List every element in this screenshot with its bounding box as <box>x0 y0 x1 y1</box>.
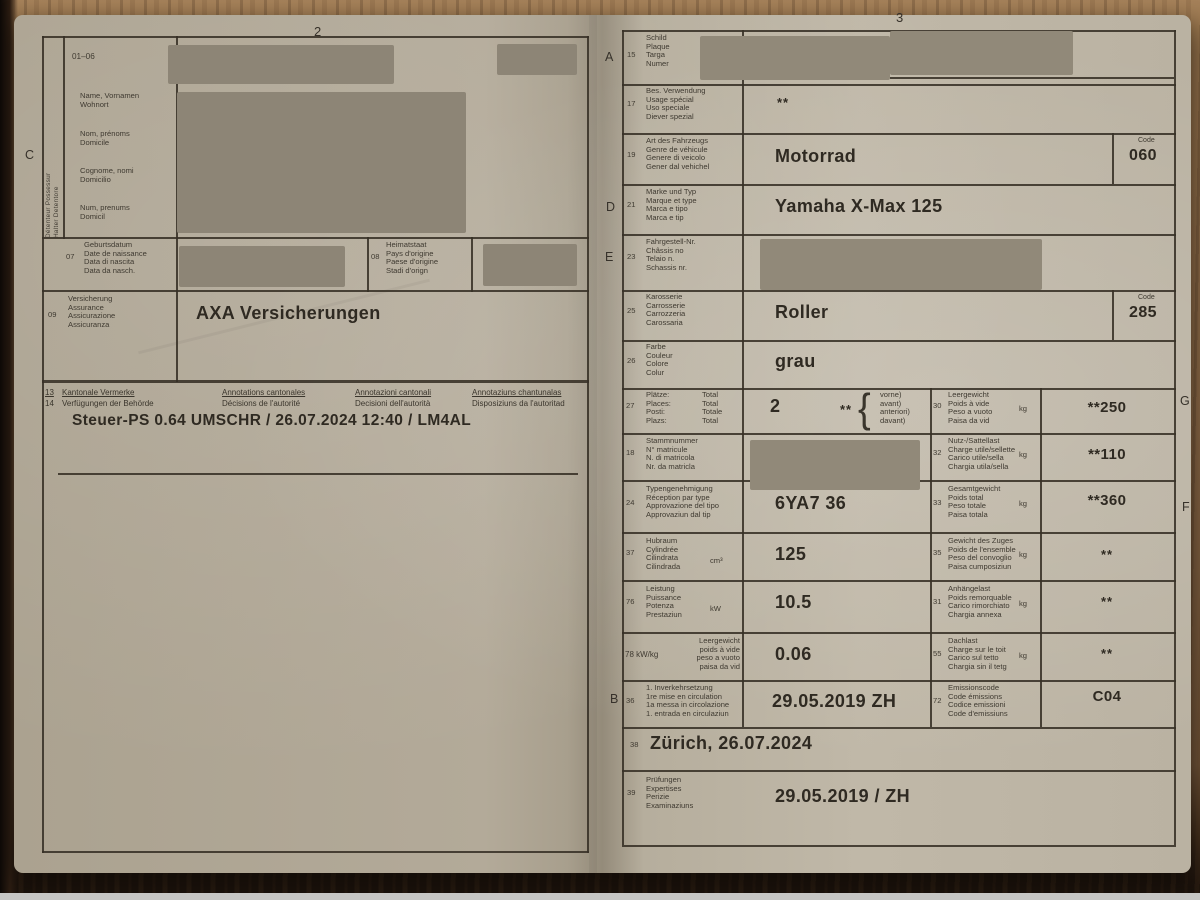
seats-total-value: 2 <box>770 396 780 417</box>
field-label-train-weight: Gewicht des Zuges Poids de l'ensemble Pe… <box>948 537 1016 572</box>
field-label-empty-weight: Leergewicht Poids à vide Peso a vuoto Pa… <box>948 391 992 426</box>
redaction-block <box>700 36 890 80</box>
label-line: Stadi d'orign <box>386 267 438 276</box>
grid-line <box>42 290 589 292</box>
field-label-power: Leistung Puissance Potenza Prestaziun <box>646 585 682 620</box>
roof-load-value: ** <box>1040 646 1174 661</box>
field-number-25: 25 <box>627 306 635 315</box>
unit-kg: kg <box>1019 450 1027 459</box>
redaction-block <box>179 246 345 287</box>
grid-line <box>622 184 1176 186</box>
grid-line <box>42 36 589 38</box>
field-number-15: 15 <box>627 50 635 59</box>
field-label-make-type: Marke und Typ Marque et type Marca e tip… <box>646 188 697 223</box>
remarks-header-rm: Annotaziuns chantunalas Disposiziuns da … <box>472 388 565 409</box>
field-number-39: 39 <box>627 788 635 797</box>
label-line: Assicuranza <box>68 321 115 330</box>
remarks-header-de: Kantonale Vermerke Verfügungen der Behör… <box>62 388 154 409</box>
margin-letter-f: F <box>1182 500 1190 514</box>
fold-crease <box>589 15 597 873</box>
label-line: Détenteur Possessur <box>45 92 53 238</box>
label-line: Marca e tip <box>646 214 697 223</box>
label-line: davant) <box>880 417 910 426</box>
label-line: Total <box>702 417 722 426</box>
grid-line <box>742 30 744 727</box>
label-line: Data da nasch. <box>84 267 147 276</box>
label-line: Examinaziuns <box>646 802 693 811</box>
label-line: Decisioni dell'autorità <box>355 399 431 410</box>
label-line: Nr. da matricla <box>646 463 698 472</box>
trailer-load-value: ** <box>1040 594 1174 609</box>
margin-letter-e: E <box>605 250 613 264</box>
label-line: Chargia annexa <box>948 611 1012 620</box>
field-label-holder-it: Cognome, nomi Domicilio <box>80 167 134 184</box>
grid-line <box>42 36 44 853</box>
field-number-30: 30 <box>933 401 941 410</box>
field-label-special-use: Bes. Verwendung Usage spécial Uso specia… <box>646 87 706 122</box>
field-number-23: 23 <box>627 252 635 261</box>
field-label-insurance: Versicherung Assurance Assicurazione Ass… <box>68 295 115 330</box>
field-label-holder-rm: Num, prenums Domicil <box>80 204 130 221</box>
field-number-32: 32 <box>933 448 941 457</box>
total-weight-value: **360 <box>1040 492 1174 509</box>
vehicle-type-value: Motorrad <box>775 146 856 167</box>
label-line: Plazs: <box>646 417 671 426</box>
label-line: Paisa da vid <box>948 417 992 426</box>
empty-weight-value: **250 <box>1040 399 1174 416</box>
special-use-value: ** <box>777 95 789 110</box>
grid-line <box>622 845 1176 847</box>
displacement-value: 125 <box>775 544 806 565</box>
remarks-header-numbers: 13 14 <box>45 388 54 409</box>
body-style-value: Roller <box>775 302 828 323</box>
field-label-trailer-load: Anhängelast Poids remorquable Carico rim… <box>948 585 1012 620</box>
label-line: Halter Detentore <box>53 92 61 238</box>
label-line: Chargia utila/sella <box>948 463 1015 472</box>
label-line: paisa da vid <box>668 663 740 672</box>
field-number-18: 18 <box>626 448 634 457</box>
label-line: 1. entrada en circulaziun <box>646 710 729 719</box>
field-number-36: 36 <box>626 696 634 705</box>
field-number-09: 09 <box>48 310 56 319</box>
vehicle-type-code: 060 <box>1112 147 1174 165</box>
first-registration-value: 29.05.2019 ZH <box>772 691 896 712</box>
code-header: Code <box>1138 294 1155 303</box>
grid-line <box>1174 30 1176 845</box>
divider-line <box>58 473 578 475</box>
field-number-27: 27 <box>626 401 634 410</box>
unit-kg: kg <box>1019 550 1027 559</box>
label-line: 13 <box>45 388 54 399</box>
code-header: Code <box>1138 137 1155 146</box>
grid-line <box>622 727 1176 729</box>
label-line: Cilindrada <box>646 563 680 572</box>
field-label-seats-front: vorne) avant) anteriori) davant) <box>880 391 910 426</box>
label-line: Carossaria <box>646 319 685 328</box>
margin-letter-g: G <box>1180 394 1190 408</box>
grid-line <box>622 133 1176 135</box>
label-line: Domicilio <box>80 176 134 185</box>
margin-letter-a: A <box>605 50 613 64</box>
field-label-type-approval: Typengenehmigung Réception par type Appr… <box>646 485 719 520</box>
field-label-plate: Schild Plaque Targa Numer <box>646 34 670 69</box>
field-label-payload: Nutz-/Sattellast Charge utile/sellette C… <box>948 437 1015 472</box>
body-style-code: 285 <box>1112 304 1174 322</box>
label-line: Décisions de l'autorité <box>222 399 305 410</box>
field-label-emission-code: Emissionscode Code émissions Codice emis… <box>948 684 1008 719</box>
grid-line <box>622 340 1176 342</box>
brace-glyph: { <box>858 386 871 432</box>
redaction-block <box>177 92 466 233</box>
field-label-stock-number: Stammnummer N° matricule N. di matricola… <box>646 437 698 472</box>
grid-line <box>42 237 589 239</box>
type-approval-value: 6YA7 36 <box>775 493 846 514</box>
margin-letter-d: D <box>606 200 615 214</box>
label-line: Gener dal vehichel <box>646 163 709 172</box>
redaction-block <box>890 31 1073 75</box>
grid-line <box>367 237 369 292</box>
grid-line <box>622 680 1176 682</box>
redaction-block <box>750 440 920 490</box>
inspection-value: 29.05.2019 / ZH <box>775 786 910 807</box>
field-number-26: 26 <box>627 356 635 365</box>
field-number-31: 31 <box>933 597 941 606</box>
label-line: Disposiziuns da l'autoritad <box>472 399 565 410</box>
label-line: Approvaziun dal tip <box>646 511 719 520</box>
field-number-08: 08 <box>371 252 379 261</box>
remarks-header-it: Annotazioni cantonali Decisioni dell'aut… <box>355 388 431 409</box>
grid-line <box>622 770 1176 772</box>
grid-line <box>622 290 1176 292</box>
label-line: Numer <box>646 60 670 69</box>
field-label-total-weight: Gesamtgewicht Poids total Peso totale Pa… <box>948 485 1000 520</box>
field-label-color: Farbe Couleur Colore Colur <box>646 343 673 378</box>
label-line: Colur <box>646 369 673 378</box>
screenshot-bottom-strip <box>0 893 1200 900</box>
field-number-38: 38 <box>630 740 638 749</box>
field-number-55: 55 <box>933 649 941 658</box>
field-number-72: 72 <box>933 696 941 705</box>
unit-kg: kg <box>1019 404 1027 413</box>
field-label-origin-country: Heimatstaat Pays d'origine Paese d'origi… <box>386 241 438 276</box>
train-weight-value: ** <box>1040 547 1174 562</box>
grid-line <box>471 237 473 292</box>
grid-line <box>42 380 589 383</box>
label-line: Annotazioni cantonali <box>355 388 431 399</box>
field-number-37: 37 <box>626 548 634 557</box>
unit-kg: kg <box>1019 599 1027 608</box>
label-line: Kantonale Vermerke <box>62 388 154 399</box>
label-line: Wohnort <box>80 101 139 110</box>
field-label-first-registration: 1. Inverkehrsetzung 1re mise en circulat… <box>646 684 729 719</box>
unit-cm3: cm³ <box>710 556 723 565</box>
color-value: grau <box>775 351 816 372</box>
field-number-24: 24 <box>626 498 634 507</box>
payload-value: **110 <box>1040 446 1174 463</box>
power-weight-ratio-value: 0.06 <box>775 644 812 665</box>
field-label-holder-fr: Nom, prénoms Domicile <box>80 130 130 147</box>
power-value: 10.5 <box>775 592 812 613</box>
margin-letter-c: C <box>25 148 34 162</box>
field-label-birthdate: Geburtsdatum Date de naissance Data di n… <box>84 241 147 276</box>
field-label-roof-load: Dachlast Charge sur le toit Carico sul t… <box>948 637 1007 672</box>
grid-line <box>622 532 1176 534</box>
field-number-78: 78 kW/kg <box>625 650 658 659</box>
field-label-holder-de: Name, Vornamen Wohnort <box>80 92 139 109</box>
field-number-01-06: 01–06 <box>72 52 95 61</box>
label-line: Paisa cumposiziun <box>948 563 1016 572</box>
label-line: Schassis nr. <box>646 264 696 273</box>
field-number-07: 07 <box>66 252 74 261</box>
make-type-value: Yamaha X-Max 125 <box>775 196 943 217</box>
emission-code-value: C04 <box>1040 688 1174 705</box>
grid-line <box>622 234 1176 236</box>
holder-rotated-label: Détenteur Possessur Halter Detentore <box>45 92 61 238</box>
label-line: Annotations cantonales <box>222 388 305 399</box>
redaction-block <box>483 244 577 286</box>
grid-line <box>622 433 1176 435</box>
grid-line <box>622 580 1176 582</box>
field-label-vehicle-type: Art des Fahrzeugs Genre de véhicule Gene… <box>646 137 709 172</box>
unit-kg: kg <box>1019 651 1027 660</box>
field-label-power-weight-ratio: Leergewicht poids à vide peso a vuoto pa… <box>668 637 740 672</box>
field-number-17: 17 <box>627 99 635 108</box>
label-line: Paisa totala <box>948 511 1000 520</box>
field-label-chassis-number: Fahrgestell-Nr. Châssis no Telaio n. Sch… <box>646 238 696 273</box>
label-line: 14 <box>45 399 54 410</box>
field-label-seats-total: Total Total Totale Total <box>702 391 722 426</box>
label-line: Domicile <box>80 139 130 148</box>
redaction-block <box>760 239 1042 290</box>
redaction-block <box>168 45 394 84</box>
grid-line <box>42 851 589 853</box>
field-number-19: 19 <box>627 150 635 159</box>
unit-kg: kg <box>1019 499 1027 508</box>
redaction-block <box>497 44 577 75</box>
field-number-21: 21 <box>627 200 635 209</box>
grid-line <box>587 36 589 853</box>
field-number-33: 33 <box>933 498 941 507</box>
insurance-value: AXA Versicherungen <box>196 303 381 324</box>
vehicle-registration-photo: 2 3 C A D E B G F Détenteur Possessur Ha… <box>0 0 1200 900</box>
label-line: Annotaziuns chantunalas <box>472 388 565 399</box>
label-line: Domicil <box>80 213 130 222</box>
label-line: Chargia sin il tetg <box>948 663 1007 672</box>
cantonal-remark-entry: Steuer-PS 0.64 UMSCHR / 26.07.2024 12:40… <box>72 412 471 430</box>
label-line: Code d'emissiuns <box>948 710 1008 719</box>
issue-place-date-value: Zürich, 26.07.2024 <box>650 733 812 754</box>
field-number-76: 76 <box>626 597 634 606</box>
margin-letter-b: B <box>610 692 618 706</box>
remarks-header-fr: Annotations cantonales Décisions de l'au… <box>222 388 305 409</box>
label-line: Prestaziun <box>646 611 682 620</box>
field-label-inspections: Prüfungen Expertises Perizie Examinaziun… <box>646 776 693 811</box>
right-page-number: 3 <box>896 10 903 25</box>
grid-line <box>890 77 1174 79</box>
seats-front-stars: ** <box>840 402 852 417</box>
field-number-35: 35 <box>933 548 941 557</box>
field-label-body-style: Karosserie Carrosserie Carrozzeria Caros… <box>646 293 685 328</box>
grid-line <box>930 388 932 727</box>
label-line: Diever spezial <box>646 113 706 122</box>
grid-line <box>63 36 65 239</box>
unit-kw: kW <box>710 604 721 613</box>
field-label-displacement: Hubraum Cylindrée Cilindrata Cilindrada <box>646 537 680 572</box>
field-label-seats: Plätze: Places: Posti: Plazs: <box>646 391 671 426</box>
grid-line <box>622 30 624 845</box>
grid-line <box>622 632 1176 634</box>
label-line: Verfügungen der Behörde <box>62 399 154 410</box>
